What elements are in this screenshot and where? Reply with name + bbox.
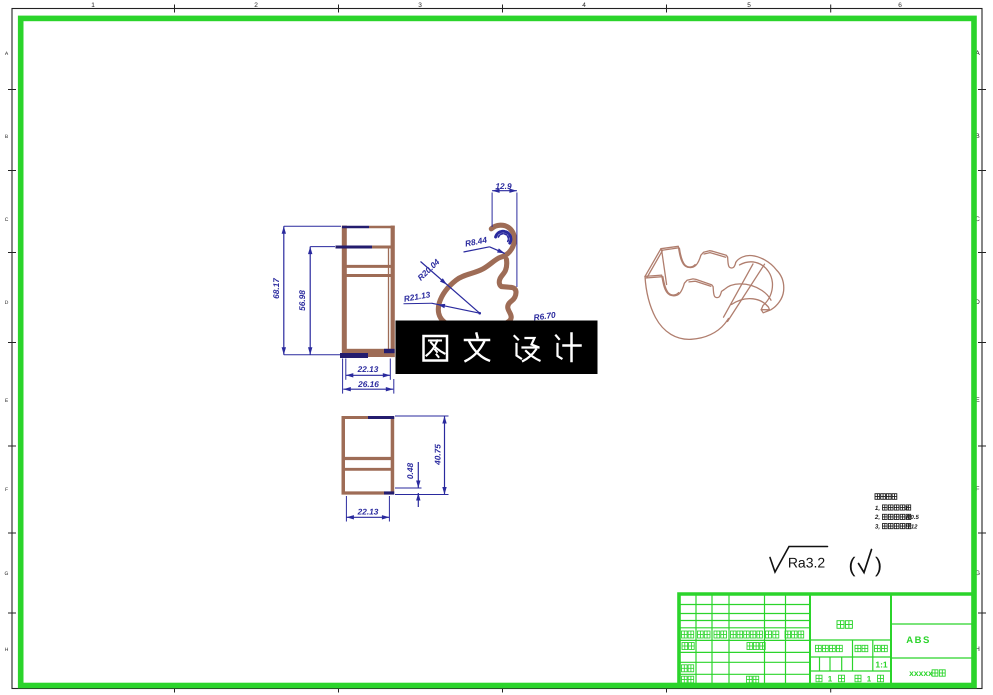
svg-text:IT12: IT12 [905,523,918,530]
svg-text:4: 4 [582,2,586,9]
svg-text:22.13: 22.13 [357,506,379,516]
svg-text:(: ( [849,554,856,577]
svg-text:40.75: 40.75 [432,444,442,466]
svg-text:ABS: ABS [906,635,931,646]
svg-text:Ra3.2: Ra3.2 [788,555,826,571]
svg-text:68.17: 68.17 [271,278,281,299]
svg-text:H: H [5,647,9,653]
svg-text:1:1: 1:1 [875,660,888,670]
svg-text:1,: 1, [875,505,880,512]
svg-text:): ) [875,554,882,577]
svg-text:6: 6 [898,2,902,9]
svg-text:1: 1 [828,675,833,684]
svg-text:3: 3 [418,2,422,9]
svg-text:F: F [5,487,8,493]
svg-text:0.48: 0.48 [405,463,415,480]
svg-text:22.13: 22.13 [357,364,379,374]
svg-text:1: 1 [867,675,872,684]
svg-text:26.16: 26.16 [357,379,379,389]
svg-text:G: G [5,571,9,577]
svg-text:5: 5 [747,2,751,9]
svg-text:2,: 2, [874,514,880,521]
svg-text:D: D [5,300,9,306]
svg-text:1: 1 [91,2,95,9]
svg-text:56.98: 56.98 [297,290,307,311]
svg-text:C: C [5,217,9,223]
svg-text:12.9: 12.9 [495,181,512,191]
svg-text:R0.5: R0.5 [906,514,919,521]
svg-text:xxxxx: xxxxx [909,668,933,678]
svg-text:2: 2 [254,2,258,9]
svg-text:3,: 3, [875,523,880,530]
